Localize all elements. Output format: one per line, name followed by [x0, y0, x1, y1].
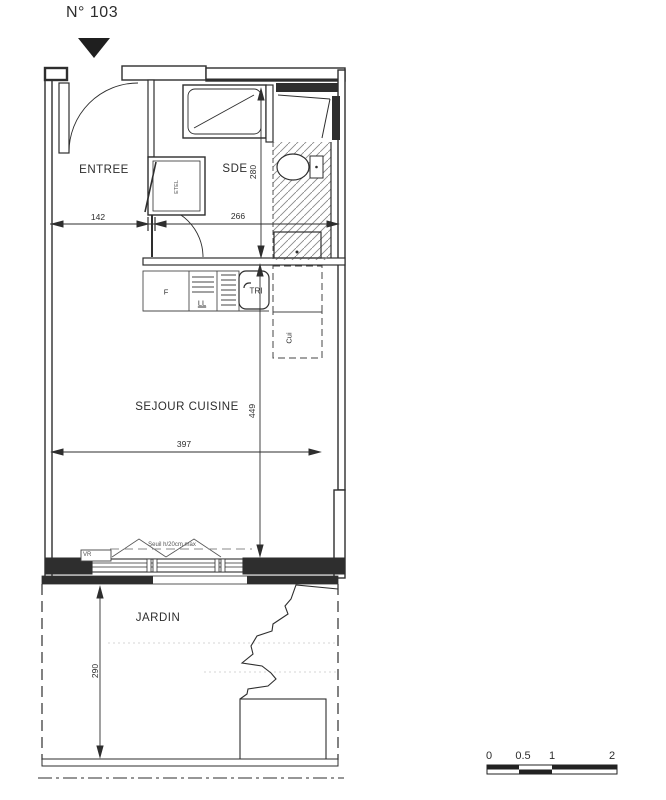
jardin-area [38, 584, 344, 778]
fixture-label-etel: ETEL [174, 180, 180, 194]
sde-window [266, 83, 340, 142]
shower [183, 85, 266, 138]
floor-plan-page: N° 103 ENTREE SDE SEJOUR CUISINE JARDIN … [0, 0, 666, 800]
entrance-marker-icon [78, 38, 110, 58]
fixture-label-washing-machine: LL [198, 299, 206, 308]
note-threshold: Seuil h/20cm max [148, 542, 196, 548]
plan-title: N° 103 [66, 4, 118, 22]
dim-sde-width: 266 [231, 211, 245, 221]
dim-sde-depth: 280 [248, 165, 258, 179]
fixture-label-roller-shutter: VR [83, 552, 91, 558]
room-label-sde: SDE [222, 163, 247, 175]
fixture-label-tri: TRI [250, 287, 263, 296]
scale-tick-2: 2 [609, 750, 615, 762]
room-label-jardin: JARDIN [136, 612, 181, 624]
scale-bar [487, 765, 617, 774]
toilet [277, 154, 323, 180]
dim-sejour-depth: 449 [247, 404, 257, 418]
kitchen-column [273, 266, 322, 358]
dim-entree-width: 142 [91, 212, 105, 222]
dim-jardin-depth: 290 [90, 664, 100, 678]
fixture-label-kitchen-column: Cui [285, 332, 294, 343]
scale-tick-1: 1 [549, 750, 555, 762]
fixture-label-fridge: F [164, 288, 169, 297]
room-label-entree: ENTREE [79, 164, 129, 176]
jardin-slab [240, 699, 326, 761]
floor-plan-drawing [0, 0, 666, 800]
scale-tick-0: 0 [486, 750, 492, 762]
hedge-line [240, 585, 338, 699]
scale-tick-05: 0.5 [515, 750, 530, 762]
dim-sejour-width: 397 [177, 439, 191, 449]
entrance-door [59, 83, 138, 153]
room-label-sejour-cuisine: SEJOUR CUISINE [135, 401, 239, 413]
